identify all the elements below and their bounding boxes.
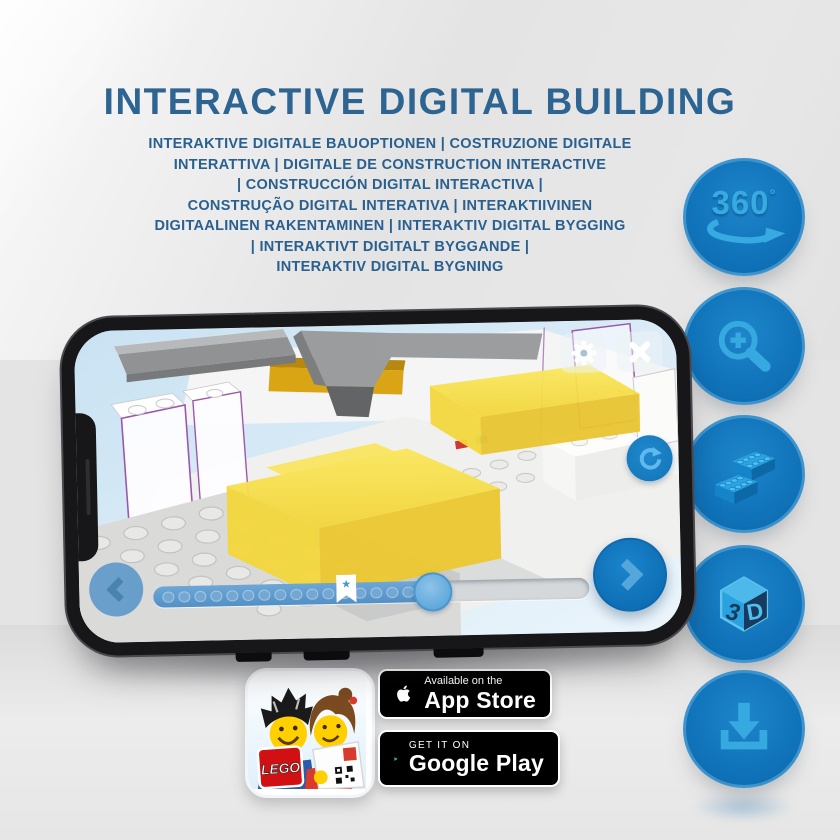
page-title: INTERACTIVE DIGITAL BUILDING <box>0 81 840 123</box>
phone-side-button <box>434 648 484 658</box>
subtitle-line: INTERAKTIVE DIGITALE BAUOPTIONEN | COSTR… <box>30 134 750 155</box>
feature-bricks-button[interactable] <box>683 415 805 533</box>
apple-logo-icon <box>394 677 413 711</box>
lego-app-artwork: LEGO <box>248 671 366 789</box>
subtitle-line: | INTERAKTIVT DIGITALT BYGGANDE | <box>30 237 750 258</box>
phone-side-button <box>236 652 272 662</box>
google-play-icon <box>394 743 398 775</box>
subtitle-line: INTERAKTIV DIGITAL BYGNING <box>30 257 750 278</box>
lego-app-icon[interactable]: LEGO <box>245 668 375 798</box>
speaker-slit <box>85 459 90 515</box>
subtitle-line: | CONSTRUCCIÓN DIGITAL INTERACTIVA | <box>30 175 750 196</box>
close-icon <box>627 339 653 365</box>
feature-zoom-button[interactable] <box>683 287 805 405</box>
phone-side-button <box>304 651 350 661</box>
smartphone: ★ <box>58 303 697 658</box>
google-play-name: Google Play <box>409 751 544 776</box>
circle-reflection <box>691 792 795 822</box>
gear-icon <box>570 339 598 367</box>
rotate-icon <box>635 444 664 473</box>
download-icon <box>713 699 775 759</box>
subtitle-line: CONSTRUÇÃO DIGITAL INTERATIVA | INTERAKT… <box>30 196 750 217</box>
subtitle-line: DIGITAALINEN RAKENTAMINEN | INTERAKTIV D… <box>30 216 750 237</box>
feature-3d-view-button[interactable]: 3 D <box>683 545 805 663</box>
subtitle-line: INTERATTIVA | DIGITALE DE CONSTRUCTION I… <box>30 155 750 176</box>
feature-download-button[interactable] <box>683 670 805 788</box>
close-button[interactable] <box>616 331 663 372</box>
lego-brick-icon <box>709 442 779 506</box>
app-screen: ★ <box>74 319 682 644</box>
multilingual-subtitle: INTERAKTIVE DIGITALE BAUOPTIONEN | COSTR… <box>30 134 750 278</box>
chevron-right-icon <box>615 556 646 593</box>
zoom-in-icon <box>713 315 775 377</box>
lego-logo-text: LEGO <box>261 760 301 778</box>
phone-notch <box>74 413 99 562</box>
app-store-badge[interactable]: Available on the App Store <box>378 669 552 719</box>
app-store-tagline: Available on the <box>424 676 536 688</box>
step-dots <box>162 585 430 602</box>
app-store-name: App Store <box>424 688 536 713</box>
3d-cube-icon: 3 D <box>710 570 778 638</box>
google-play-badge[interactable]: GET IT ON Google Play <box>378 730 560 787</box>
chevron-left-icon <box>104 575 129 603</box>
settings-button[interactable] <box>560 332 607 373</box>
